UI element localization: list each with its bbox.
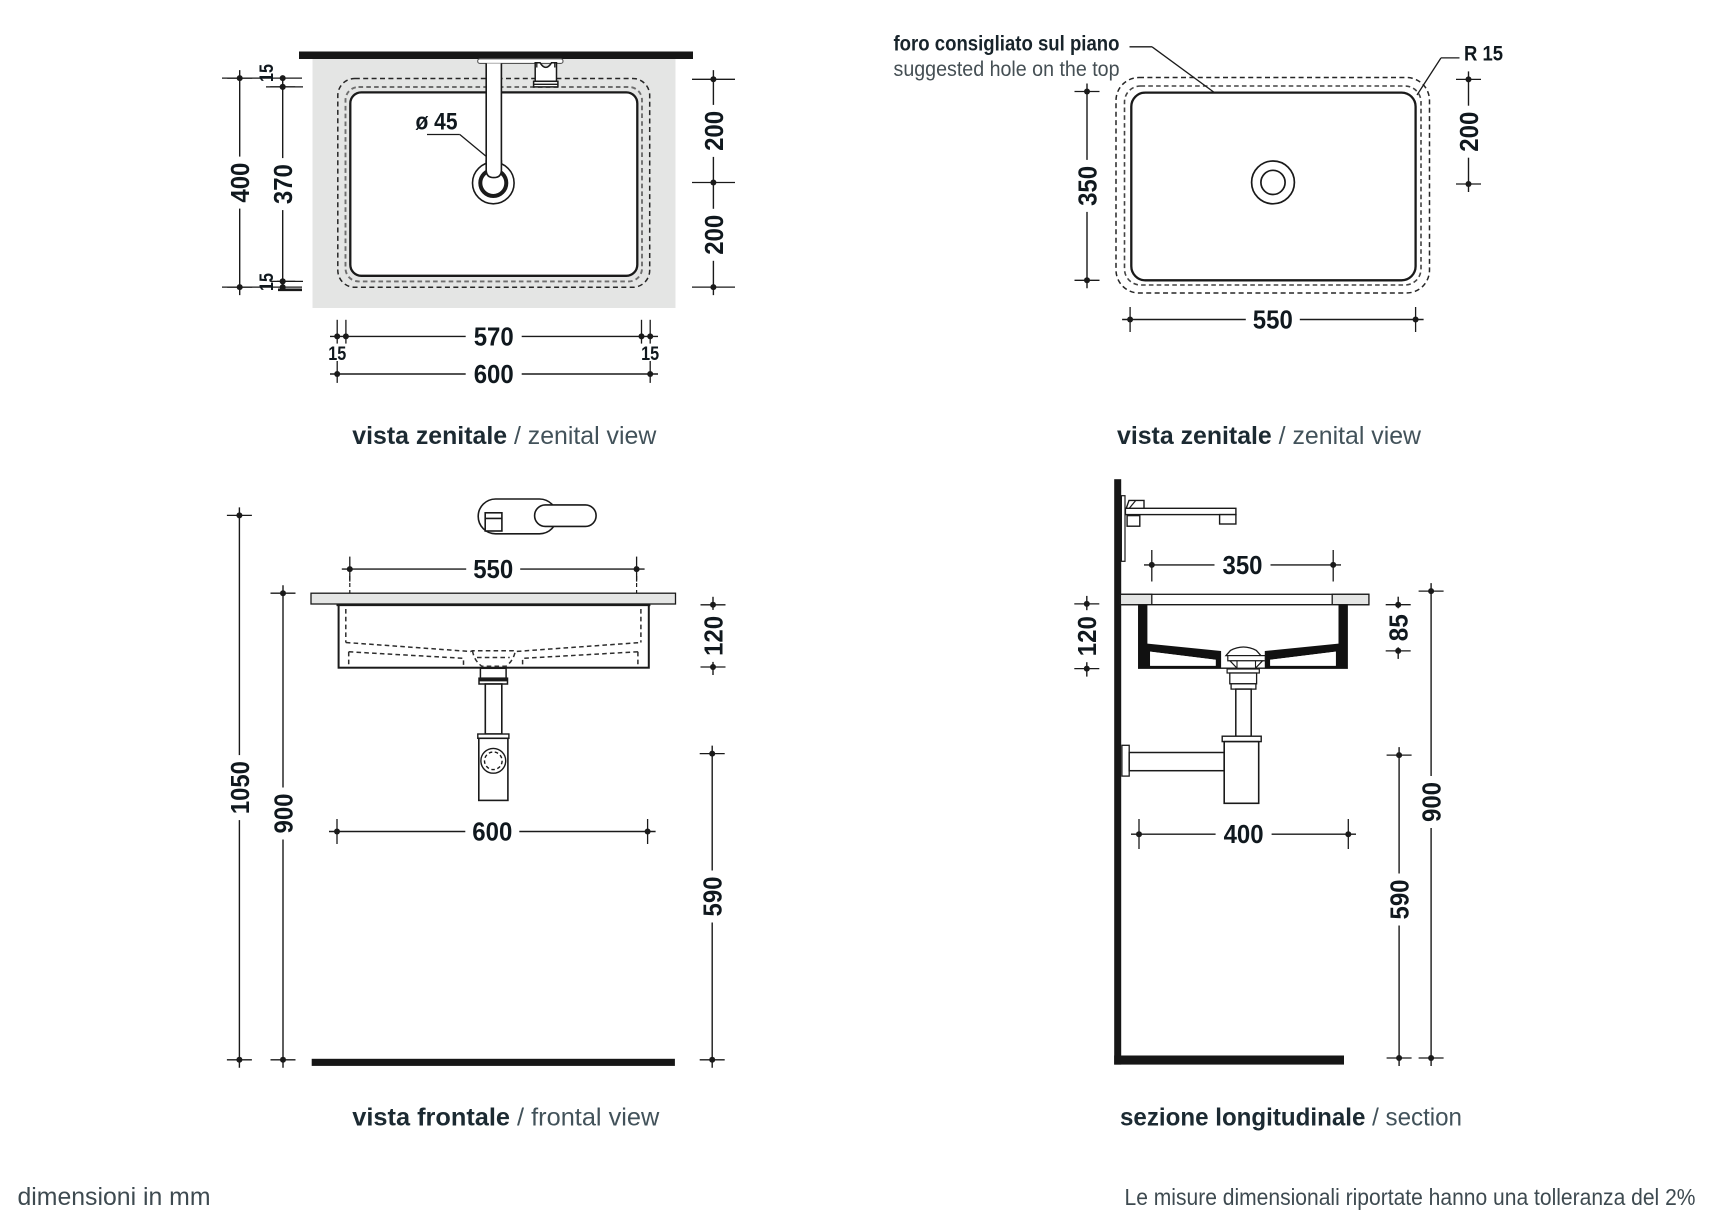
svg-text:900: 900 <box>268 794 298 834</box>
svg-text:600: 600 <box>474 359 514 389</box>
svg-text:sezione longitudinale / sectio: sezione longitudinale / section <box>1120 1104 1462 1132</box>
svg-text:R 15: R 15 <box>1464 43 1503 66</box>
svg-text:dimensioni in mm: dimensioni in mm <box>18 1183 211 1211</box>
svg-text:Le misure dimensionali riporta: Le misure dimensionali riportate hanno u… <box>1125 1184 1696 1210</box>
svg-text:vista zenitale / zenital view: vista zenitale / zenital view <box>1117 422 1422 450</box>
svg-text:vista frontale / frontal view: vista frontale / frontal view <box>352 1104 660 1132</box>
svg-text:600: 600 <box>472 817 512 847</box>
svg-text:400: 400 <box>1224 819 1264 849</box>
svg-text:550: 550 <box>473 554 513 584</box>
svg-text:590: 590 <box>1385 880 1415 920</box>
svg-text:15: 15 <box>257 273 278 291</box>
svg-text:200: 200 <box>1454 112 1484 152</box>
svg-text:15: 15 <box>257 64 278 82</box>
svg-text:550: 550 <box>1253 305 1293 335</box>
svg-text:200: 200 <box>699 215 729 255</box>
svg-text:590: 590 <box>698 877 728 917</box>
svg-text:370: 370 <box>268 164 298 204</box>
svg-text:ø 45: ø 45 <box>416 109 458 136</box>
svg-text:85: 85 <box>1384 614 1414 641</box>
svg-text:120: 120 <box>1072 616 1102 656</box>
svg-text:120: 120 <box>698 616 728 656</box>
svg-text:350: 350 <box>1072 166 1102 206</box>
svg-text:350: 350 <box>1223 550 1263 580</box>
svg-text:1050: 1050 <box>225 761 255 814</box>
svg-text:400: 400 <box>225 163 255 203</box>
svg-text:200: 200 <box>699 111 729 151</box>
svg-text:suggested hole on the top: suggested hole on the top <box>894 58 1120 81</box>
svg-text:570: 570 <box>474 321 514 351</box>
svg-text:foro consigliato sul piano: foro consigliato sul piano <box>894 33 1120 56</box>
svg-text:vista zenitale / zenital view: vista zenitale / zenital view <box>352 422 657 450</box>
svg-text:900: 900 <box>1417 782 1447 822</box>
